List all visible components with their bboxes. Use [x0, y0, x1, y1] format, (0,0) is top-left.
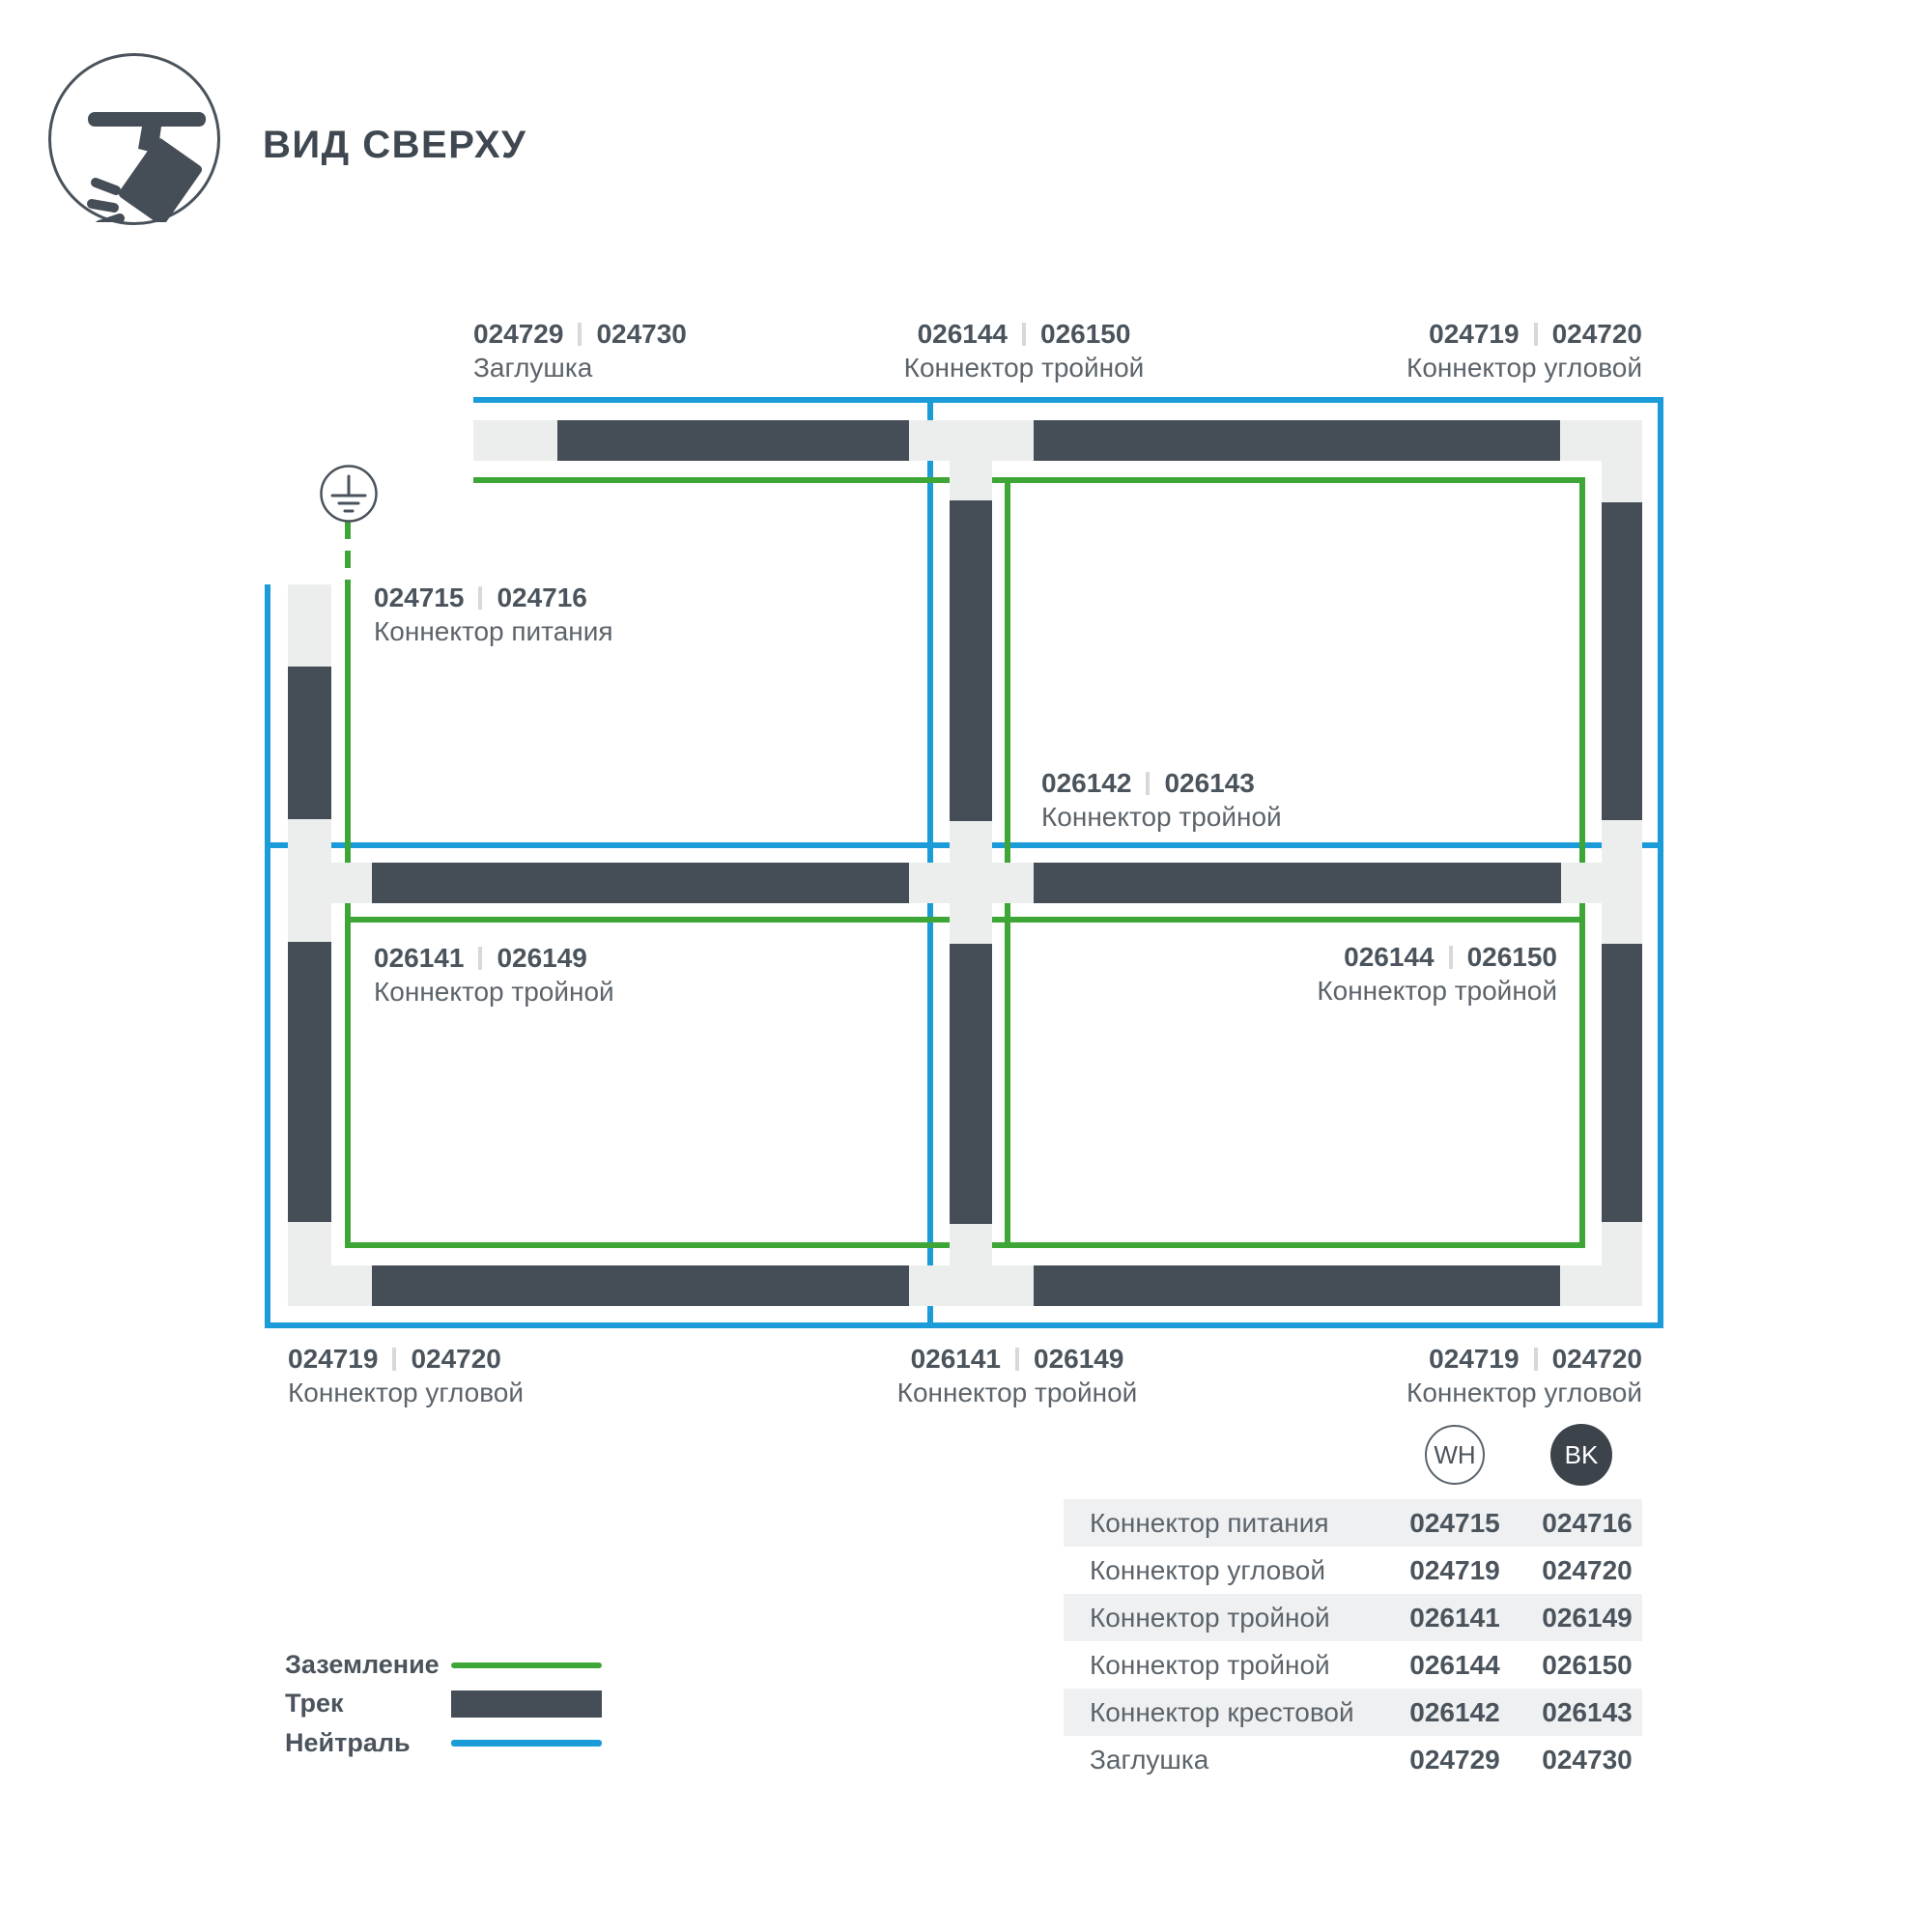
table-row: Заглушка 024729 024730	[1064, 1736, 1642, 1783]
part-caption: Заглушка	[473, 354, 687, 383]
power-connector	[288, 584, 331, 667]
part-number-bk: 024720	[411, 1345, 500, 1374]
part-name: Коннектор угловой	[1064, 1555, 1378, 1586]
part-number-wh: 026141	[374, 944, 464, 973]
part-number-bk: 024720	[1552, 320, 1642, 349]
tee-connector-middle-left-stem	[331, 863, 372, 903]
part-name: Коннектор питания	[1064, 1508, 1378, 1539]
corner-connector-bottom-right	[1560, 1265, 1642, 1306]
part-name: Коннектор тройной	[1064, 1603, 1378, 1634]
part-caption: Коннектор тройной	[1041, 803, 1282, 832]
part-number-wh: 024729	[1378, 1745, 1532, 1776]
neutral-line-right	[1658, 397, 1663, 1328]
ground-line-dashed	[345, 522, 351, 582]
divider	[1534, 1348, 1538, 1371]
tee-connector-top	[909, 420, 1034, 461]
part-number-wh: 024715	[374, 583, 464, 612]
part-number-bk: 026149	[1532, 1603, 1642, 1634]
divider	[478, 586, 482, 610]
part-number-wh: 024729	[473, 320, 563, 349]
neutral-line-bottom	[265, 1322, 1663, 1328]
part-caption: Коннектор угловой	[1352, 354, 1642, 383]
track-segment	[557, 420, 909, 461]
corner-connector-bottom-left-stem	[331, 1265, 372, 1306]
table-row: Коннектор питания 024715 024716	[1064, 1499, 1642, 1547]
track-spotlight-icon	[48, 53, 220, 225]
callout-end-cap: 024729024730 Заглушка	[473, 320, 687, 383]
part-name: Заглушка	[1064, 1745, 1378, 1776]
divider	[1022, 323, 1026, 346]
part-name: Коннектор крестовой	[1064, 1697, 1378, 1728]
corner-connector-bottom-left	[288, 1222, 331, 1306]
part-number-wh: 026141	[1378, 1603, 1532, 1634]
table-row: Коннектор тройной 026141 026149	[1064, 1594, 1642, 1641]
part-number-bk: 026150	[1467, 943, 1557, 972]
legend-item-neutral: Нейтраль	[285, 1728, 602, 1758]
tee-connector-middle-left	[288, 819, 331, 942]
end-cap-connector	[473, 420, 557, 461]
callout-tee-top: 026144026150 Коннектор тройной	[831, 320, 1217, 383]
part-number-bk: 024730	[1532, 1745, 1642, 1776]
callout-tee-bottom: 026141026149 Коннектор тройной	[824, 1345, 1210, 1407]
tee-connector-bottom	[909, 1265, 1034, 1306]
part-number-wh: 026141	[911, 1345, 1001, 1374]
part-number-wh: 024719	[1378, 1555, 1532, 1586]
track-swatch	[451, 1690, 602, 1718]
neutral-line-swatch	[451, 1740, 602, 1747]
part-number-wh: 024715	[1378, 1508, 1532, 1539]
neutral-line-left	[265, 584, 270, 1328]
corner-connector-top-right-stem	[1602, 461, 1642, 502]
color-badge-black: BK	[1550, 1424, 1612, 1486]
callout-tee-middle-right: 026144026150 Коннектор тройной	[1171, 943, 1557, 1006]
divider	[1449, 946, 1453, 969]
divider	[1534, 323, 1538, 346]
part-number-wh: 026144	[918, 320, 1008, 349]
ground-line-swatch	[451, 1662, 602, 1668]
part-number-bk: 024730	[596, 320, 686, 349]
parts-table: Коннектор питания 024715 024716 Коннекто…	[1064, 1499, 1642, 1783]
table-row: Коннектор крестовой 026142 026143	[1064, 1689, 1642, 1736]
legend-label: Нейтраль	[285, 1728, 451, 1758]
part-number-bk: 026143	[1164, 769, 1254, 798]
part-number-bk: 024720	[1532, 1555, 1642, 1586]
callout-corner-top-right: 024719024720 Коннектор угловой	[1352, 320, 1642, 383]
ground-line-left	[345, 580, 351, 1248]
track-segment	[1034, 863, 1561, 903]
divider	[1015, 1348, 1019, 1371]
part-caption: Коннектор тройной	[1171, 977, 1557, 1006]
divider	[1146, 772, 1150, 795]
track-segment	[372, 1265, 909, 1306]
callout-corner-bottom-left: 024719024720 Коннектор угловой	[288, 1345, 524, 1407]
part-caption: Коннектор угловой	[288, 1378, 524, 1407]
part-number-bk: 026150	[1532, 1650, 1642, 1681]
divider	[392, 1348, 396, 1371]
earth-ground-icon	[319, 464, 379, 528]
spotlight-glyph	[51, 56, 217, 222]
part-name: Коннектор тройной	[1064, 1650, 1378, 1681]
track-segment	[950, 944, 992, 1224]
legend-item-ground: Заземление	[285, 1650, 602, 1680]
track-segment	[1602, 944, 1642, 1222]
part-number-bk: 024716	[1532, 1508, 1642, 1539]
callout-corner-bottom-right: 024719024720 Коннектор угловой	[1352, 1345, 1642, 1407]
tee-connector-middle-right	[1602, 820, 1642, 944]
legend-label: Заземление	[285, 1650, 451, 1680]
color-badge-white: WH	[1425, 1425, 1485, 1485]
part-number-wh: 026142	[1378, 1697, 1532, 1728]
track-segment	[288, 667, 331, 819]
part-number-bk: 026149	[497, 944, 586, 973]
callout-tee-middle-left: 026141026149 Коннектор тройной	[374, 944, 614, 1007]
part-number-wh: 024719	[288, 1345, 378, 1374]
tee-connector-bottom-stem	[950, 1224, 992, 1265]
divider	[478, 947, 482, 970]
part-number-wh: 024719	[1429, 320, 1519, 349]
top-view-diagram-page: ВИД СВЕРХУ	[0, 0, 1932, 1932]
table-row: Коннектор угловой 024719 024720	[1064, 1547, 1642, 1594]
ground-line-top	[473, 477, 1585, 483]
divider	[578, 323, 582, 346]
table-row: Коннектор тройной 026144 026150	[1064, 1641, 1642, 1689]
tee-connector-middle-right-stem	[1561, 863, 1602, 903]
track-segment	[288, 942, 331, 1222]
callout-power-connector: 024715024716 Коннектор питания	[374, 583, 613, 646]
part-caption: Коннектор питания	[374, 617, 613, 646]
part-caption: Коннектор тройной	[831, 354, 1217, 383]
legend-label: Трек	[285, 1689, 451, 1719]
part-number-wh: 026144	[1378, 1650, 1532, 1681]
track-segment	[950, 500, 992, 821]
part-number-wh: 026144	[1344, 943, 1434, 972]
part-number-wh: 026142	[1041, 769, 1131, 798]
neutral-line-top	[473, 397, 1663, 403]
cross-connector-vertical	[950, 821, 992, 944]
legend-item-track: Трек	[285, 1689, 602, 1719]
track-segment	[372, 863, 909, 903]
tee-connector-top-stem	[950, 461, 992, 500]
part-caption: Коннектор тройной	[374, 978, 614, 1007]
part-number-bk: 026149	[1034, 1345, 1123, 1374]
track-segment	[1602, 502, 1642, 820]
corner-connector-bottom-right-stem	[1602, 1222, 1642, 1265]
part-caption: Коннектор тройной	[824, 1378, 1210, 1407]
page-title: ВИД СВЕРХУ	[263, 124, 526, 167]
part-caption: Коннектор угловой	[1352, 1378, 1642, 1407]
track-segment	[1034, 420, 1560, 461]
part-number-bk: 024720	[1552, 1345, 1642, 1374]
callout-cross-connector: 026142026143 Коннектор тройной	[1041, 769, 1282, 832]
corner-connector-top-right	[1560, 420, 1642, 461]
track-segment	[1034, 1265, 1560, 1306]
part-number-bk: 024716	[497, 583, 586, 612]
part-number-wh: 024719	[1429, 1345, 1519, 1374]
part-number-bk: 026143	[1532, 1697, 1642, 1728]
part-number-bk: 026150	[1040, 320, 1130, 349]
